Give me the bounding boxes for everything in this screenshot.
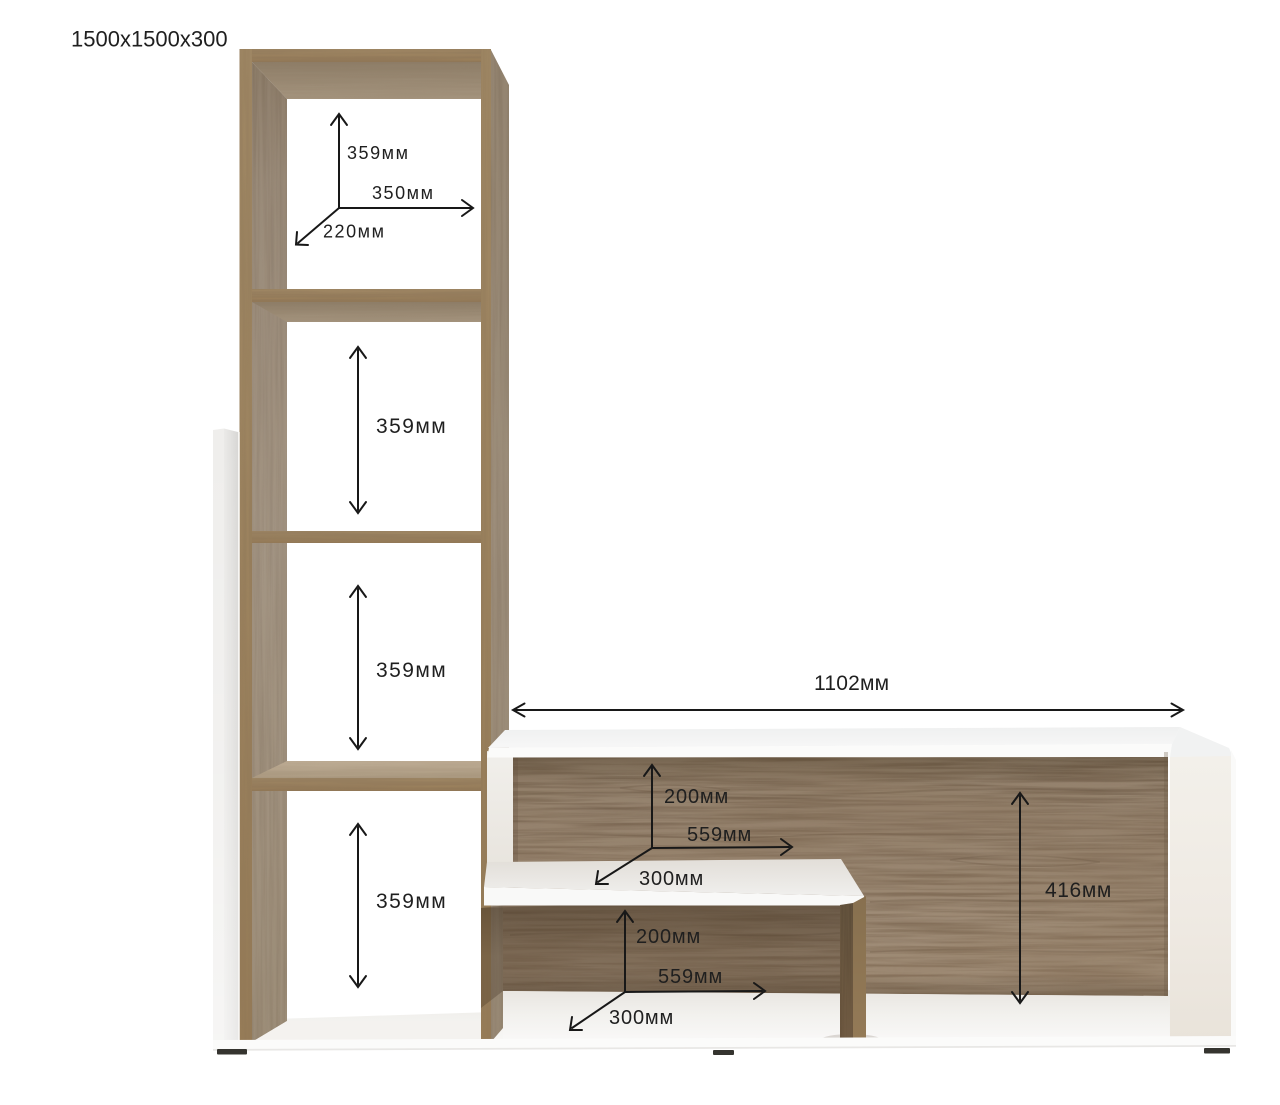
svg-text:559мм: 559мм: [658, 966, 723, 988]
svg-text:416мм: 416мм: [1045, 879, 1112, 902]
svg-text:559мм: 559мм: [687, 824, 752, 846]
svg-text:220мм: 220мм: [323, 222, 386, 242]
svg-text:359мм: 359мм: [376, 659, 447, 682]
svg-text:1102мм: 1102мм: [814, 672, 889, 695]
svg-text:359мм: 359мм: [376, 415, 447, 438]
svg-text:300мм: 300мм: [609, 1007, 674, 1029]
svg-text:359мм: 359мм: [376, 890, 447, 913]
svg-text:1500x1500x300: 1500x1500x300: [71, 27, 228, 52]
svg-text:200мм: 200мм: [664, 786, 729, 808]
svg-text:200мм: 200мм: [636, 926, 701, 948]
svg-text:350мм: 350мм: [372, 183, 435, 203]
svg-text:359мм: 359мм: [347, 143, 410, 163]
svg-text:300мм: 300мм: [639, 868, 704, 890]
